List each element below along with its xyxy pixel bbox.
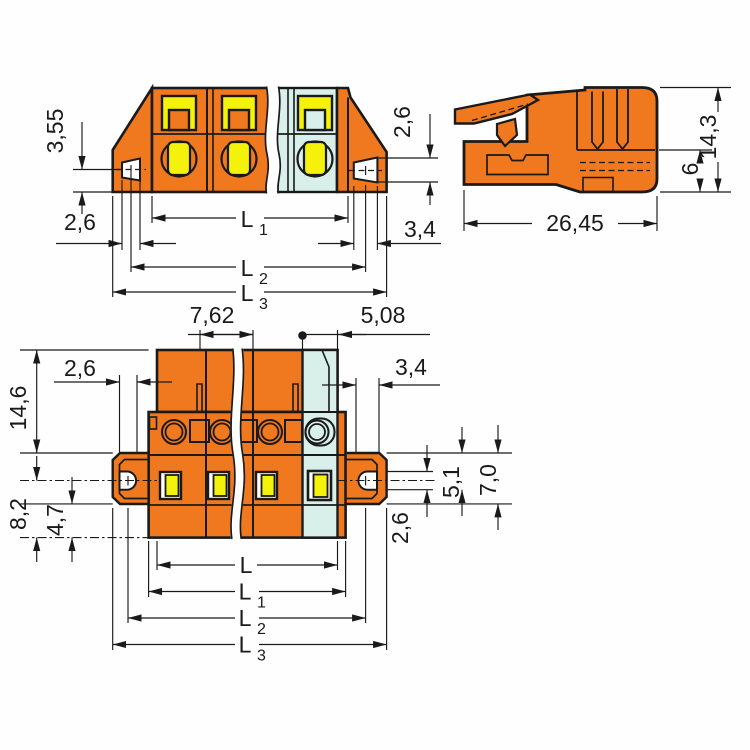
dim-L1-sub: 1	[259, 222, 268, 239]
break-gap	[271, 85, 274, 195]
dim-L1-label: L	[241, 206, 254, 232]
dim-L1-label: L	[239, 579, 252, 605]
dim-slot-width-left-label: 2,6	[64, 355, 96, 381]
dim-slot-width-right-label: 3,4	[395, 354, 427, 380]
dim-L3-label: L	[239, 632, 252, 658]
dim-L3-label: L	[241, 280, 254, 306]
dim-slot-height-right-label: 2,6	[387, 512, 413, 544]
dim-L3-sub: 3	[257, 648, 266, 665]
contact-window-inner	[305, 110, 325, 130]
dim-flange-to-bottom-label: 4,7	[42, 504, 68, 536]
dim-end-pitch-label: 5,08	[361, 302, 406, 328]
dim-L3-sub: 3	[259, 296, 268, 313]
dim-body-height-label: 14,6	[5, 386, 31, 431]
dim-total-width-label: 26,45	[546, 210, 604, 236]
dim-L2-sub: 2	[259, 271, 268, 288]
dim-L1-sub: 1	[257, 595, 266, 612]
dim-hole-height-label: 3,55	[42, 109, 68, 154]
contact-blade	[214, 475, 227, 496]
dim-L-label: L	[240, 552, 253, 578]
front-connector-body	[113, 85, 387, 195]
dim-L2-label: L	[239, 605, 252, 631]
contact-window-inner	[169, 110, 189, 130]
dim-L2-sub: 2	[257, 621, 266, 638]
dim-slot-height-right-label: 2,6	[389, 106, 415, 138]
dim-slot-width-left-label: 2,6	[64, 209, 96, 235]
dim-hole-center-to-bottom-label: 8,2	[5, 498, 31, 530]
clamp-contact	[228, 142, 250, 175]
dim-flange-slot-depth-label: 5,1	[438, 466, 464, 498]
break-gap	[236, 347, 240, 541]
clamp-contact	[168, 142, 190, 175]
dim-slot-width-right-label: 3,4	[404, 216, 436, 242]
technical-drawing-page: 3,55 2,6 L 1 L 2 L 3	[0, 0, 750, 750]
contact-blade	[262, 475, 275, 496]
dim-flange-height-label: 7,0	[475, 464, 501, 496]
dim-pitch-label: 7,62	[190, 302, 235, 328]
contact-blade	[166, 475, 179, 496]
contact-window-inner	[229, 110, 249, 130]
datum-dot	[298, 331, 307, 340]
dim-lower-height-label: 6	[677, 163, 703, 176]
connector-dimension-drawing: 3,55 2,6 L 1 L 2 L 3	[0, 0, 750, 750]
contact-blade	[314, 475, 328, 498]
clamp-contact	[304, 142, 326, 175]
dim-total-height-label: 14,3	[695, 115, 721, 160]
dim-L2-label: L	[241, 255, 254, 281]
